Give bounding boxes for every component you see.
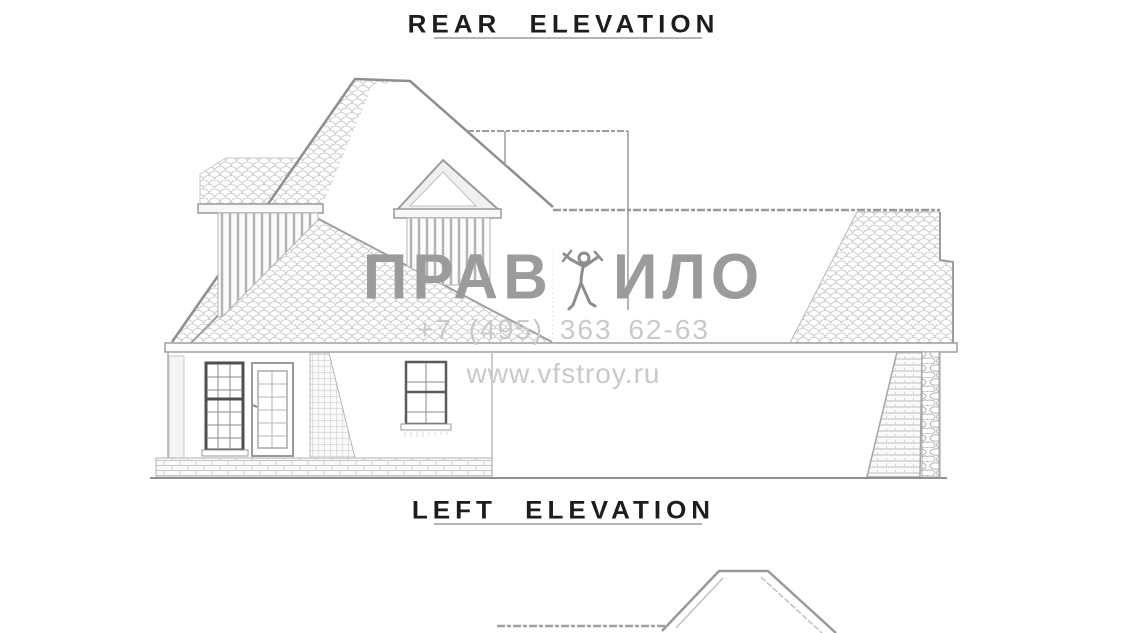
- roof-outline: [662, 571, 836, 633]
- rear-elevation-title: REAR ELEVATION: [0, 10, 1127, 40]
- stone-chase: [922, 352, 939, 477]
- patio-door: [252, 363, 293, 456]
- casement-window: [202, 363, 248, 456]
- corner-pilaster: [169, 356, 184, 458]
- elevation-sheet: { "titles": { "top": "REAR ELEVATION", "…: [0, 0, 1127, 633]
- rear-title-underline: [434, 37, 702, 39]
- sloped-wing-wall: [310, 353, 355, 458]
- window-sill: [202, 450, 248, 456]
- right-roof-shingles: [790, 212, 953, 343]
- left-title-underline: [434, 523, 702, 525]
- chimney: [867, 352, 940, 477]
- small-window: [401, 362, 451, 438]
- left-elevation-title: LEFT ELEVATION: [0, 496, 1127, 526]
- left-elevation-roof-partial: [497, 571, 836, 633]
- foundation-strip: [156, 458, 492, 477]
- window-sill: [401, 424, 451, 430]
- elevation-drawing: [0, 0, 1127, 633]
- rear-elevation-house: [150, 79, 957, 478]
- eave-fascia: [165, 343, 957, 352]
